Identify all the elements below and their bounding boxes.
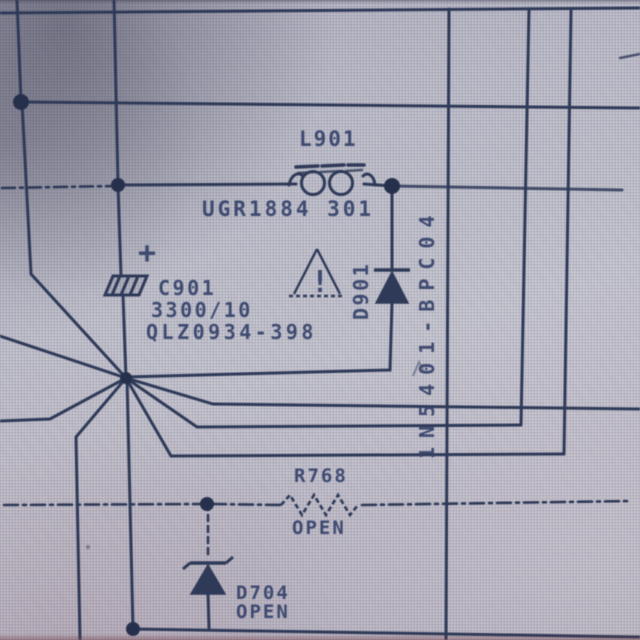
inductor-symbol [289, 165, 375, 195]
wire-left-vertical [17, 0, 21, 101]
wire-cap-top-lead [118, 185, 121, 276]
junction-dot [120, 372, 132, 384]
label-d901-ref: D901 [349, 262, 373, 320]
label-polarity-plus: + [138, 236, 156, 271]
wire-cap-bottom-lead [123, 295, 126, 378]
label-r768-status: OPEN [292, 517, 346, 539]
wire-fan-a [126, 378, 640, 409]
junction-dots [13, 94, 400, 636]
wire-vertical-567 [564, 11, 571, 454]
wire-upper-rail [21, 102, 640, 108]
label-l901-part: UGR1884 301 [202, 197, 374, 221]
wire-fan-left-3 [76, 378, 126, 640]
junction-dot [111, 178, 125, 192]
label-r768-ref: R768 [294, 465, 348, 487]
schematic-photo: ! L901 UGR1884 301 + C901 3300/10 QLZ093… [0, 0, 640, 640]
wire-inductor-left [118, 184, 296, 185]
wire-top-rail [0, 8, 640, 13]
wire-inductor-out [392, 186, 622, 190]
zener-diode-symbol [183, 557, 233, 594]
label-c901-part: QLZ0934-398 [146, 320, 317, 344]
wire-vertical-448 [446, 9, 449, 640]
wires [0, 0, 640, 640]
label-c901-value: 3300/10 [151, 298, 253, 322]
wire-d704-bottom-lead [208, 594, 209, 628]
label-c901-ref: C901 [158, 276, 216, 300]
diode-symbol [374, 270, 410, 303]
junction-dot [200, 497, 214, 511]
wire-topright-mark [620, 54, 640, 58]
wire-r768-dashed [4, 504, 204, 505]
wire-dashdot-left [2, 186, 114, 188]
capacitor-symbol [105, 276, 147, 295]
junction-dot [384, 178, 400, 194]
label-d704-status: OPEN [236, 601, 290, 623]
label-d901-part: 1N5401-BPC04 [415, 207, 439, 460]
photo-shadow-bottom [0, 634, 640, 640]
resistor-symbol [281, 495, 358, 515]
wire-r768-dashed-right [362, 501, 630, 505]
photo-shadow-top [0, 0, 640, 4]
warning-exclamation: ! [311, 265, 329, 300]
wire-fan-c [126, 378, 564, 456]
wire-fan-b [126, 378, 521, 427]
label-l901-ref: L901 [299, 127, 358, 151]
wire-left-bent-rail [22, 102, 126, 378]
wire-vertical-525 [521, 9, 529, 425]
wire-r768-dashed-mid [212, 504, 281, 505]
wire-vertical-115 [114, 0, 118, 184]
junction-dot [13, 94, 29, 110]
schematic-diagram: ! L901 UGR1884 301 + C901 3300/10 QLZ093… [0, 0, 640, 640]
